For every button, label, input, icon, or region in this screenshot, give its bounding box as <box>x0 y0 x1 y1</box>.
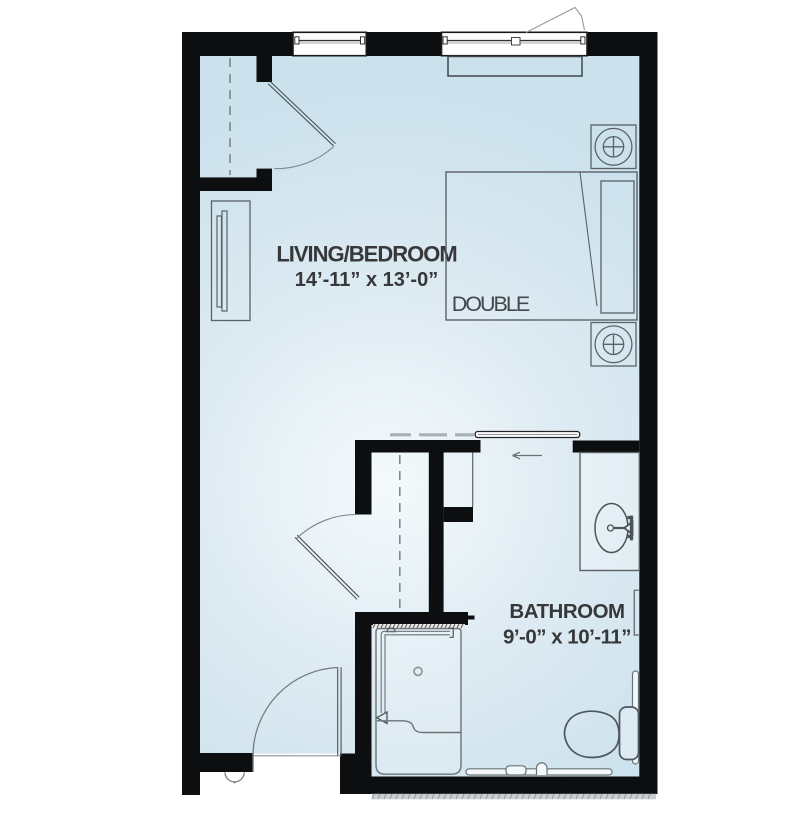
svg-text:BATHROOM: BATHROOM <box>509 600 624 623</box>
svg-text:DOUBLE: DOUBLE <box>452 292 530 316</box>
svg-text:14’-11” x 13’-0”: 14’-11” x 13’-0” <box>295 269 438 291</box>
svg-text:LIVING/BEDROOM: LIVING/BEDROOM <box>276 242 456 267</box>
svg-text:9’-0” x 10’-11”: 9’-0” x 10’-11” <box>503 626 631 649</box>
